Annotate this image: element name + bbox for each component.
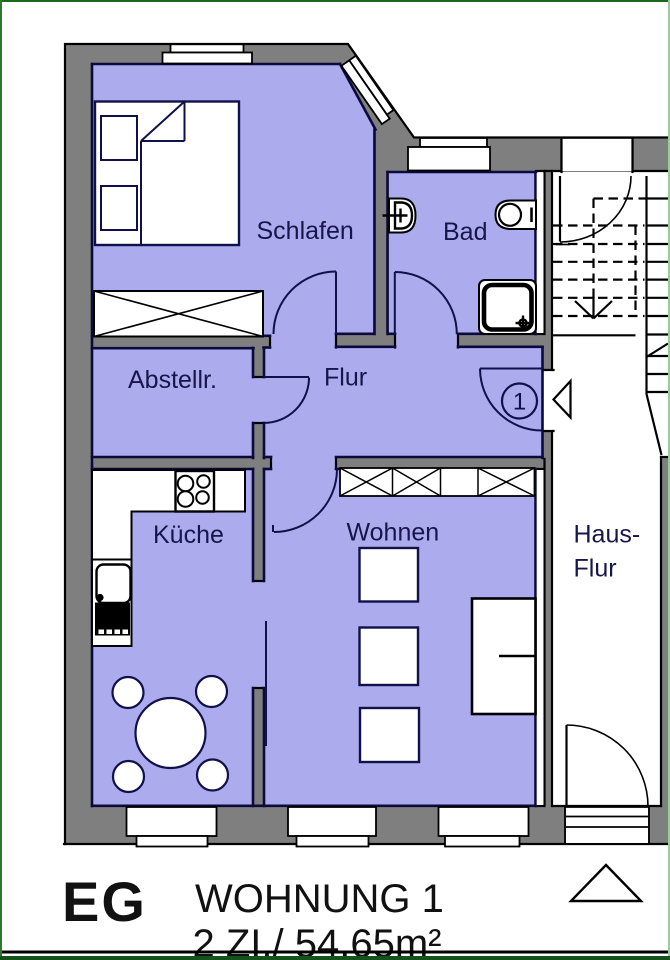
svg-text:Abstellr.: Abstellr. xyxy=(128,366,217,394)
svg-text:Küche: Küche xyxy=(153,521,224,549)
svg-text:Bad: Bad xyxy=(443,218,487,246)
svg-text:Schlafen: Schlafen xyxy=(257,217,354,245)
svg-text:Flur: Flur xyxy=(574,555,617,583)
svg-text:WOHNUNG 1: WOHNUNG 1 xyxy=(195,877,444,921)
svg-text:EG: EG xyxy=(62,870,147,933)
svg-text:Haus-: Haus- xyxy=(574,521,641,549)
svg-text:2 ZI./ 54.65m²: 2 ZI./ 54.65m² xyxy=(193,922,442,960)
svg-text:Wohnen: Wohnen xyxy=(347,519,440,547)
svg-text:Flur: Flur xyxy=(324,364,367,392)
svg-text:1: 1 xyxy=(513,389,526,416)
